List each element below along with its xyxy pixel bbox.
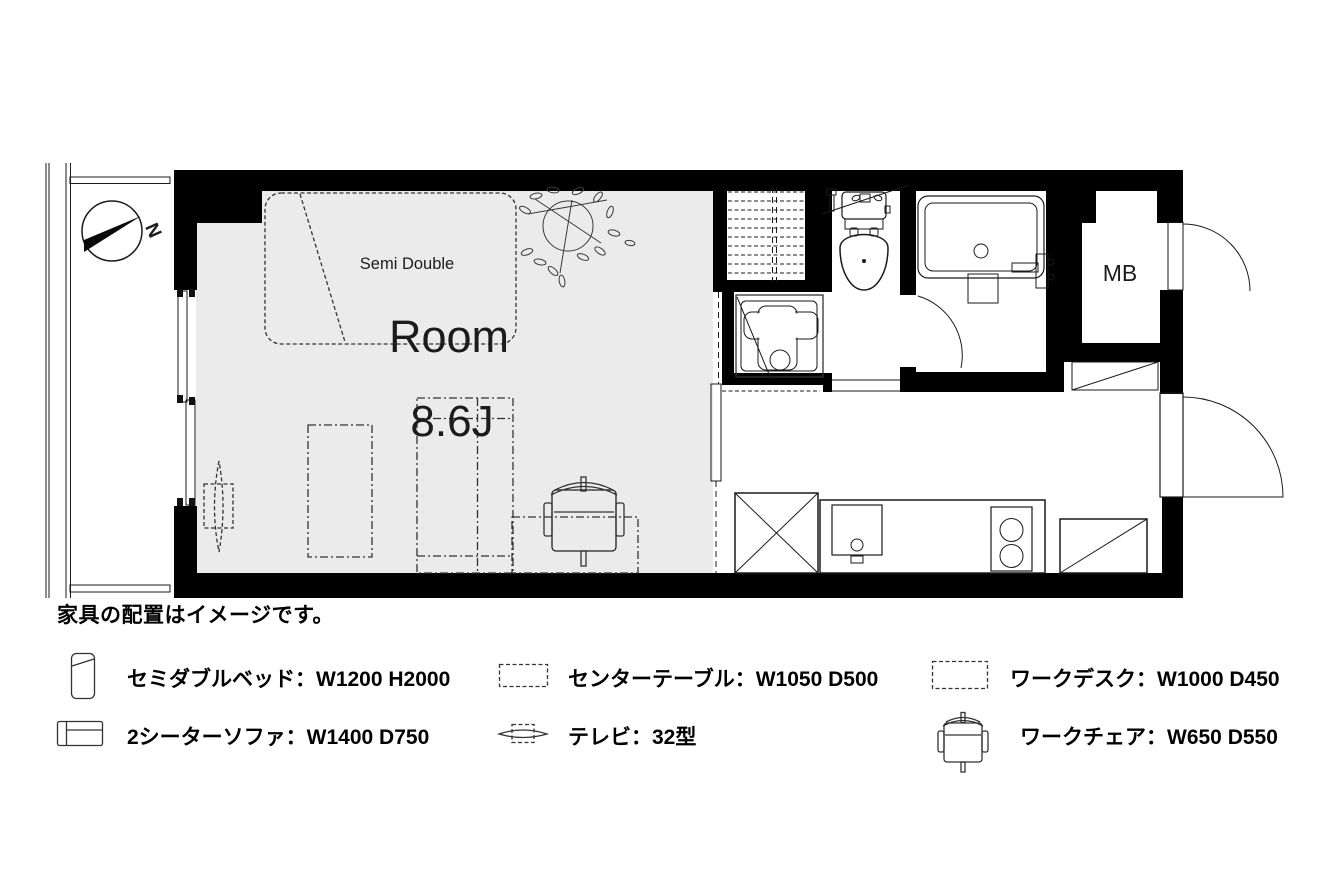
legend-item-label: ワークデスク：W1000 D450 (1010, 663, 1280, 693)
kitchen-counter (820, 500, 1045, 573)
tv-icon (497, 722, 550, 746)
compass-north-label: N (140, 220, 165, 241)
floor-plan-canvas: N (0, 0, 1330, 887)
legend-item-label: セミダブルベッド：W1200 H2000 (127, 663, 450, 693)
room-size-label: 8.6J (410, 397, 493, 446)
meter-box: MB (1072, 260, 1158, 390)
entrance-door (1160, 393, 1283, 497)
center-table-icon (498, 663, 550, 689)
kitchen-sink (832, 505, 882, 555)
toilet (822, 185, 909, 391)
vanity-unit (736, 295, 823, 379)
sofa-icon (56, 720, 105, 748)
room-floor (196, 191, 713, 573)
stove (991, 507, 1032, 571)
room-label: Room (389, 311, 509, 362)
closet (728, 187, 806, 282)
chair-icon (937, 711, 990, 774)
floor-plan: N (0, 0, 1330, 600)
bath-door-swing (918, 296, 962, 368)
meter-box-label: MB (1103, 260, 1138, 286)
compass-icon: N (82, 201, 165, 261)
legend-item-label: センターテーブル：W1050 D500 (568, 663, 878, 693)
desk-icon (931, 660, 990, 691)
washing-machine-space (1060, 519, 1147, 573)
window (177, 289, 195, 506)
mb-door (1168, 222, 1250, 291)
legend-item-label: テレビ：32型 (568, 721, 696, 751)
bathtub (918, 196, 1054, 368)
bed-size-label: Semi Double (360, 255, 454, 273)
bed-icon (70, 652, 97, 701)
faucet-icon (851, 539, 863, 551)
legend-item-label: 2シーターソファ：W1400 D750 (127, 721, 429, 751)
furniture-note: 家具の配置はイメージです。 (57, 599, 334, 629)
refrigerator-space (735, 493, 818, 573)
legend-item-label: ワークチェア：W650 D550 (1020, 721, 1278, 751)
